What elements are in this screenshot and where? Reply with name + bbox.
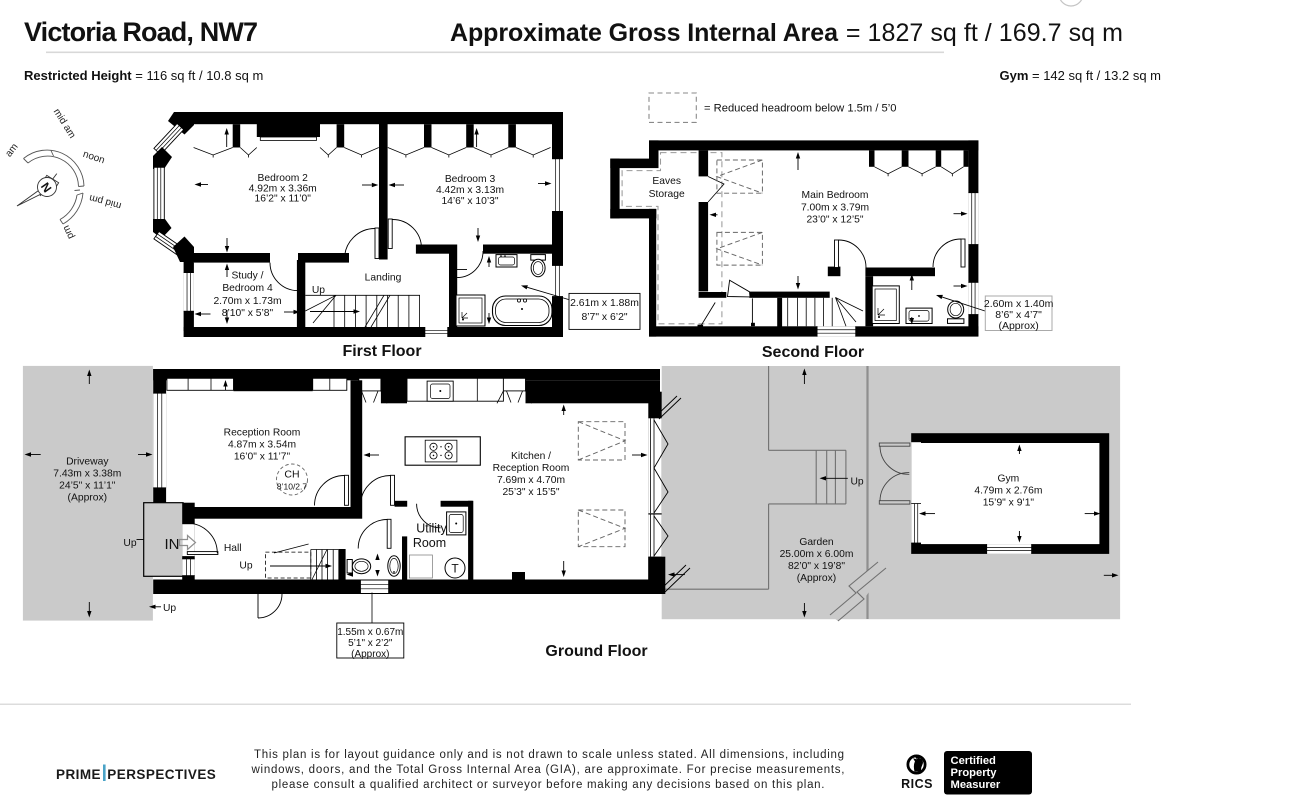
svg-text:Reception Room: Reception Room [493, 463, 570, 474]
svg-text:Property: Property [951, 767, 998, 779]
svg-text:Kitchen /: Kitchen / [511, 451, 551, 462]
svg-text:(Approx): (Approx) [68, 493, 107, 504]
svg-text:(Approx): (Approx) [998, 320, 1038, 332]
svg-text:This plan is for layout guidan: This plan is for layout guidance only an… [254, 749, 844, 761]
svg-text:Victoria Road, NW7: Victoria Road, NW7 [24, 17, 258, 47]
svg-text:Up: Up [123, 538, 136, 549]
svg-text:25.00m x 6.00m: 25.00m x 6.00m [780, 549, 854, 560]
svg-text:Landing: Landing [365, 273, 402, 284]
svg-text:4.87m x 3.54m: 4.87m x 3.54m [228, 440, 296, 451]
svg-text:8’10" x 5’8": 8’10" x 5’8" [222, 308, 274, 319]
svg-text:7.43m x 3.38m: 7.43m x 3.38m [53, 469, 121, 480]
svg-text:Up: Up [851, 477, 864, 488]
svg-text:1.55m x 0.67m: 1.55m x 0.67m [337, 627, 403, 638]
svg-text:Driveway: Driveway [66, 457, 109, 468]
svg-text:First Floor: First Floor [342, 343, 421, 360]
svg-text:(Approx): (Approx) [351, 649, 389, 660]
svg-text:15’9" x 9’1": 15’9" x 9’1" [983, 498, 1035, 509]
svg-text:Measurer: Measurer [951, 779, 1001, 791]
svg-text:23’0" x 12’5": 23’0" x 12’5" [806, 215, 863, 226]
svg-text:Room: Room [413, 536, 446, 550]
svg-text:16’0" x 11’7": 16’0" x 11’7" [234, 452, 291, 463]
svg-text:Bedroom 4: Bedroom 4 [222, 283, 273, 294]
svg-text:windows, doors, and the Total: windows, doors, and the Total Gross Inte… [251, 764, 845, 776]
svg-text:4.79m x 2.76m: 4.79m x 2.76m [974, 486, 1042, 497]
svg-text:Bedroom 3: Bedroom 3 [445, 174, 496, 185]
svg-text:Hall: Hall [224, 543, 242, 554]
svg-text:Reception Room: Reception Room [224, 428, 301, 439]
svg-text:Gym = 142 sq ft / 13.2 sq m: Gym = 142 sq ft / 13.2 sq m [999, 68, 1161, 83]
svg-text:8’10/2.7: 8’10/2.7 [277, 482, 308, 492]
svg-text:Study /: Study / [231, 271, 263, 282]
svg-text:PRIME PERSPECTIVES: PRIME PERSPECTIVES [56, 767, 218, 782]
svg-text:25’3" x 15’5": 25’3" x 15’5" [502, 487, 559, 498]
svg-text:2.61m x 1.88m: 2.61m x 1.88m [570, 298, 639, 309]
svg-text:Up: Up [239, 561, 252, 572]
svg-text:Up: Up [312, 285, 325, 296]
svg-text:Main Bedroom: Main Bedroom [802, 190, 869, 201]
svg-text:please consult a qualified arc: please consult a qualified architect or … [272, 779, 825, 791]
svg-text:7.69m x 4.70m: 7.69m x 4.70m [497, 475, 565, 486]
svg-text:Bedroom 2: Bedroom 2 [258, 173, 309, 184]
svg-text:Approximate Gross Internal Are: Approximate Gross Internal Area= 1827 sq… [450, 19, 1123, 47]
svg-text:T: T [451, 562, 459, 576]
svg-text:Second Floor: Second Floor [762, 344, 864, 361]
svg-text:16’2" x 11’0": 16’2" x 11’0" [255, 194, 312, 205]
svg-text:82’0" x 19’8": 82’0" x 19’8" [788, 561, 845, 572]
svg-text:24’5" x 11’1": 24’5" x 11’1" [59, 481, 116, 492]
svg-text:IN: IN [165, 536, 180, 553]
svg-text:Garden: Garden [799, 537, 834, 548]
svg-text:4.42m x 3.13m: 4.42m x 3.13m [436, 185, 504, 196]
svg-text:Ground Floor: Ground Floor [545, 643, 647, 660]
svg-text:(Approx): (Approx) [797, 573, 836, 584]
svg-text:Up: Up [163, 603, 176, 614]
svg-text:5’1" x 2’2": 5’1" x 2’2" [348, 638, 393, 649]
svg-text:2.70m x 1.73m: 2.70m x 1.73m [213, 296, 281, 307]
svg-text:7.00m x 3.79m: 7.00m x 3.79m [801, 203, 869, 214]
svg-text:Gym: Gym [998, 474, 1020, 485]
svg-text:RICS: RICS [901, 777, 933, 791]
svg-text:Eaves: Eaves [652, 176, 681, 187]
svg-text:Restricted Height = 116 sq ft: Restricted Height = 116 sq ft / 10.8 sq … [24, 68, 263, 83]
svg-text:14’6" x 10’3": 14’6" x 10’3" [441, 196, 498, 207]
svg-text:= Reduced headroom below 1.5m: = Reduced headroom below 1.5m / 5’0 [704, 103, 896, 115]
svg-text:Storage: Storage [649, 189, 685, 200]
svg-text:Utility: Utility [416, 522, 447, 536]
svg-text:8’7" x 6’2": 8’7" x 6’2" [581, 312, 627, 323]
svg-text:CH: CH [284, 469, 299, 481]
svg-text:Certified: Certified [951, 755, 997, 767]
